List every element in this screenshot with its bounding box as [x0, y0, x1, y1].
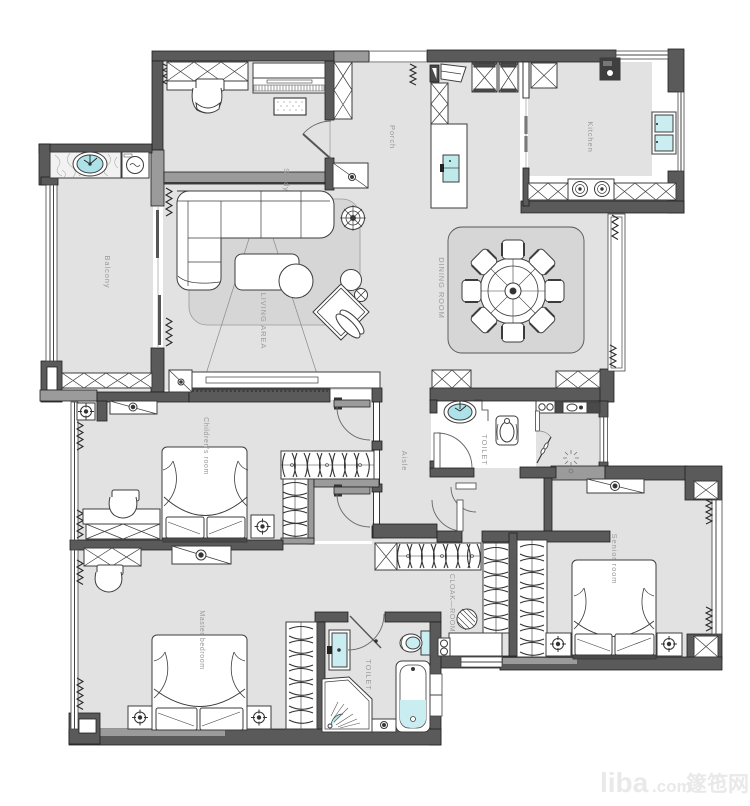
svg-text:篴竾网: 篴竾网 [686, 772, 749, 796]
svg-text:LIVING AREA: LIVING AREA [259, 293, 268, 350]
svg-text:Senior room: Senior room [610, 534, 619, 585]
svg-text:Balcony: Balcony [103, 256, 112, 289]
svg-text:Kitchen: Kitchen [586, 121, 595, 152]
svg-text:Aisle: Aisle [400, 451, 409, 472]
svg-text:TOILET: TOILET [364, 659, 373, 691]
svg-text:DINING ROOM: DINING ROOM [437, 257, 446, 319]
svg-text:Master bedroom: Master bedroom [198, 610, 205, 669]
svg-text:Children's room: Children's room [202, 417, 209, 475]
svg-text:TOILET: TOILET [480, 434, 489, 466]
svg-text:Study: Study [282, 168, 291, 192]
svg-text:Porch: Porch [388, 125, 397, 149]
svg-text:CLOAK—ROOM: CLOAK—ROOM [448, 574, 455, 633]
svg-text:liba: liba [600, 767, 649, 798]
